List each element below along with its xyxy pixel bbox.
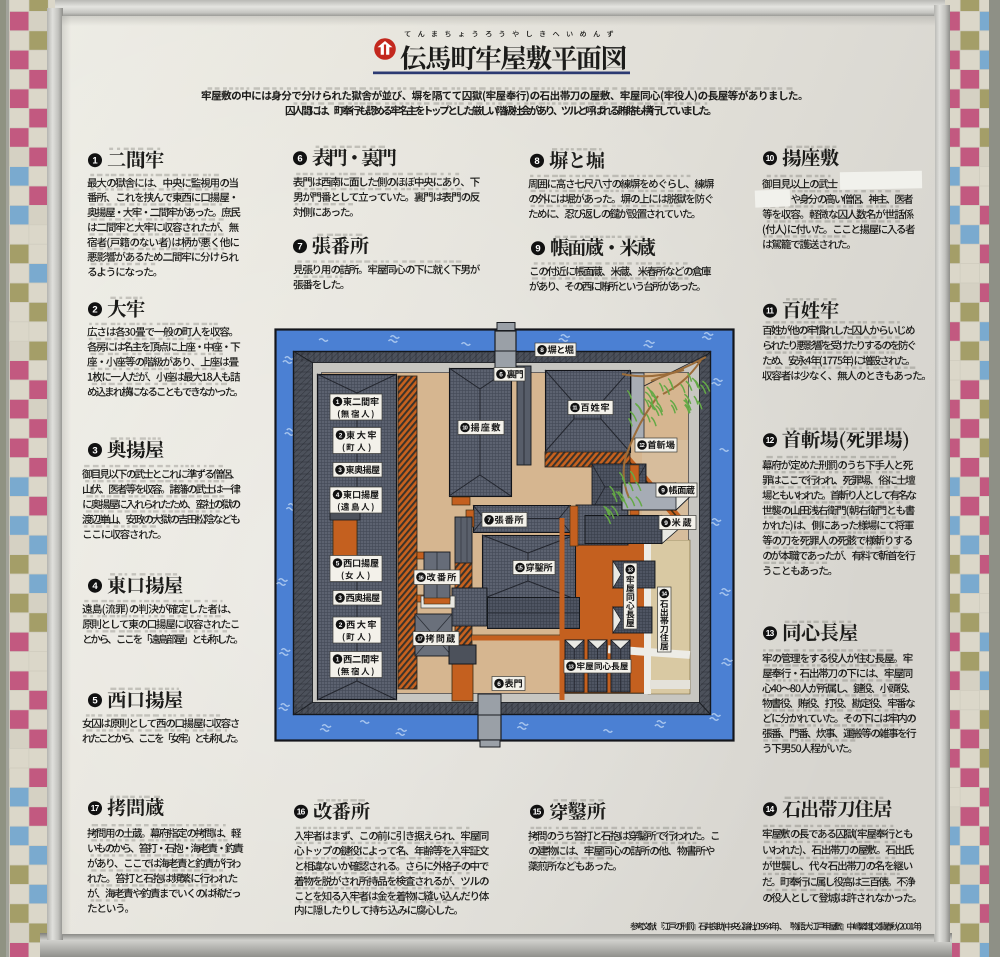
svg-text:17: 17 — [91, 803, 100, 813]
svg-text:16: 16 — [297, 807, 306, 817]
svg-text:9: 9 — [661, 487, 665, 494]
svg-text:8: 8 — [534, 156, 539, 167]
svg-text:2: 2 — [92, 305, 97, 316]
svg-text:9: 9 — [535, 244, 540, 255]
svg-text:6: 6 — [297, 154, 302, 165]
svg-text:1: 1 — [92, 156, 98, 167]
svg-text:11: 11 — [572, 406, 577, 412]
svg-text:13: 13 — [628, 568, 633, 574]
svg-text:17: 17 — [417, 637, 422, 643]
svg-text:4: 4 — [92, 581, 98, 592]
svg-text:4: 4 — [336, 492, 340, 499]
svg-text:3: 3 — [92, 445, 97, 456]
svg-text:10: 10 — [462, 426, 467, 432]
svg-text:12: 12 — [639, 443, 644, 449]
svg-text:16: 16 — [418, 575, 423, 581]
svg-text:10: 10 — [766, 153, 775, 163]
svg-text:15: 15 — [517, 566, 522, 572]
svg-text:6: 6 — [497, 681, 501, 688]
svg-text:2: 2 — [339, 622, 343, 629]
svg-text:2: 2 — [339, 432, 343, 439]
svg-text:5: 5 — [92, 696, 98, 707]
svg-text:7: 7 — [297, 242, 302, 253]
svg-text:7: 7 — [487, 517, 491, 524]
svg-text:1: 1 — [336, 399, 340, 406]
svg-text:6: 6 — [499, 372, 503, 379]
svg-text:8: 8 — [540, 347, 544, 354]
svg-text:15: 15 — [533, 807, 542, 817]
svg-text:13: 13 — [766, 628, 775, 638]
svg-text:11: 11 — [766, 306, 774, 316]
svg-text:13: 13 — [568, 664, 573, 670]
svg-text:1: 1 — [336, 656, 340, 663]
svg-text:12: 12 — [766, 435, 775, 445]
svg-text:3: 3 — [338, 595, 342, 602]
svg-text:9: 9 — [664, 520, 668, 527]
svg-text:3: 3 — [338, 467, 342, 474]
svg-text:14: 14 — [766, 804, 775, 814]
svg-text:5: 5 — [336, 560, 340, 567]
